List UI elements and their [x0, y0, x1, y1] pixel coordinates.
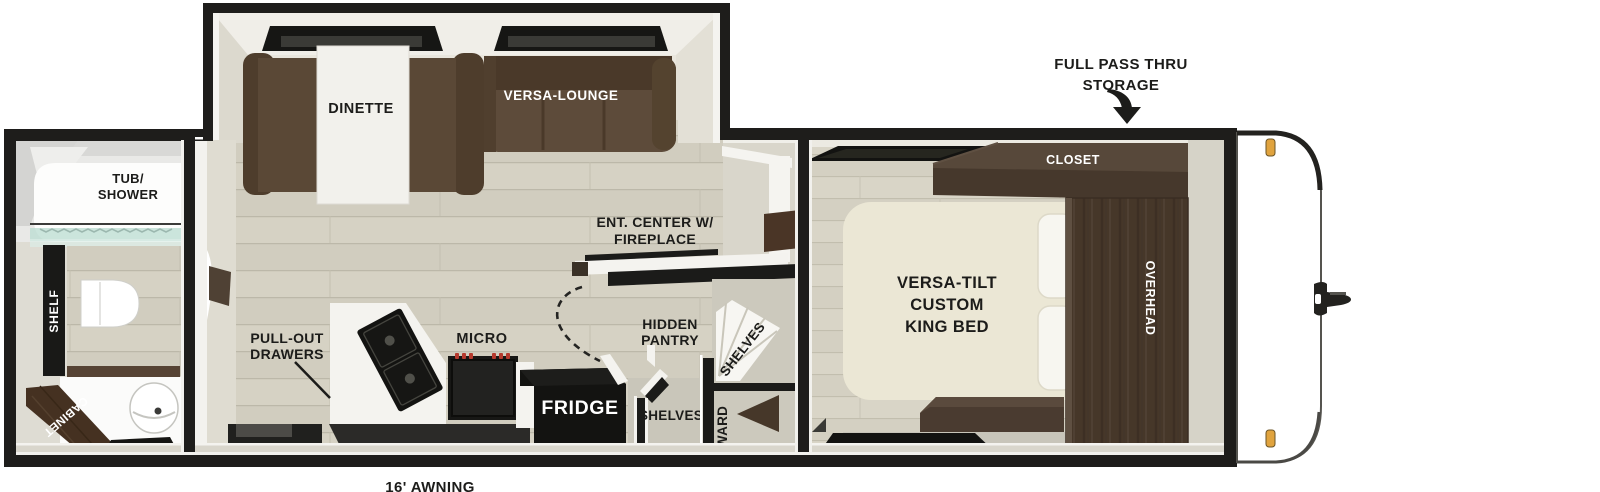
- svg-text:MICRO: MICRO: [456, 331, 507, 347]
- svg-text:ENT. CENTER W/: ENT. CENTER W/: [597, 214, 714, 230]
- svg-text:DINETTE: DINETTE: [328, 101, 394, 117]
- svg-text:WARD: WARD: [715, 406, 730, 448]
- svg-text:OVERHEAD: OVERHEAD: [1143, 261, 1157, 336]
- svg-text:STORAGE: STORAGE: [1083, 77, 1160, 94]
- svg-text:FIREPLACE: FIREPLACE: [614, 231, 696, 247]
- svg-text:PULL-OUT: PULL-OUT: [250, 330, 323, 346]
- svg-text:TUB/: TUB/: [112, 171, 144, 186]
- svg-text:16' AWNING: 16' AWNING: [385, 479, 475, 492]
- svg-text:KING BED: KING BED: [905, 318, 989, 336]
- svg-text:VERSA-LOUNGE: VERSA-LOUNGE: [504, 88, 619, 103]
- svg-text:CLOSET: CLOSET: [1046, 153, 1100, 167]
- svg-text:FULL PASS THRU: FULL PASS THRU: [1054, 56, 1187, 73]
- svg-text:SHELVES: SHELVES: [639, 408, 703, 423]
- svg-text:PANTRY: PANTRY: [641, 332, 699, 348]
- svg-text:HIDDEN: HIDDEN: [642, 316, 697, 332]
- svg-text:SHELF: SHELF: [47, 289, 61, 332]
- svg-text:DRAWERS: DRAWERS: [250, 346, 324, 362]
- svg-text:FRIDGE: FRIDGE: [541, 397, 618, 419]
- svg-text:SHOWER: SHOWER: [98, 187, 159, 202]
- svg-text:VERSA-TILT: VERSA-TILT: [897, 274, 997, 292]
- svg-text:CUSTOM: CUSTOM: [910, 296, 984, 314]
